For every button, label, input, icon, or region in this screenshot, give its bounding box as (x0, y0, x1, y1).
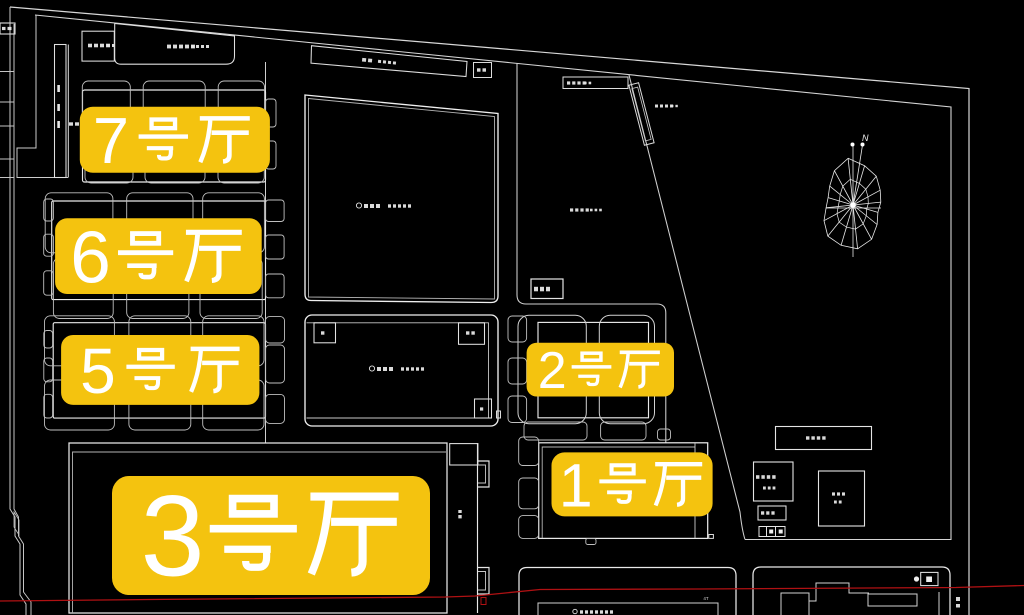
svg-text:2: 2 (538, 342, 567, 400)
svg-text:3: 3 (141, 473, 205, 601)
svg-text:6: 6 (70, 217, 111, 298)
svg-text:7: 7 (93, 104, 129, 177)
svg-text:5: 5 (80, 335, 116, 407)
svg-text:4T: 4T (703, 596, 709, 601)
svg-text:N: N (862, 133, 869, 143)
svg-text:1: 1 (559, 451, 593, 519)
